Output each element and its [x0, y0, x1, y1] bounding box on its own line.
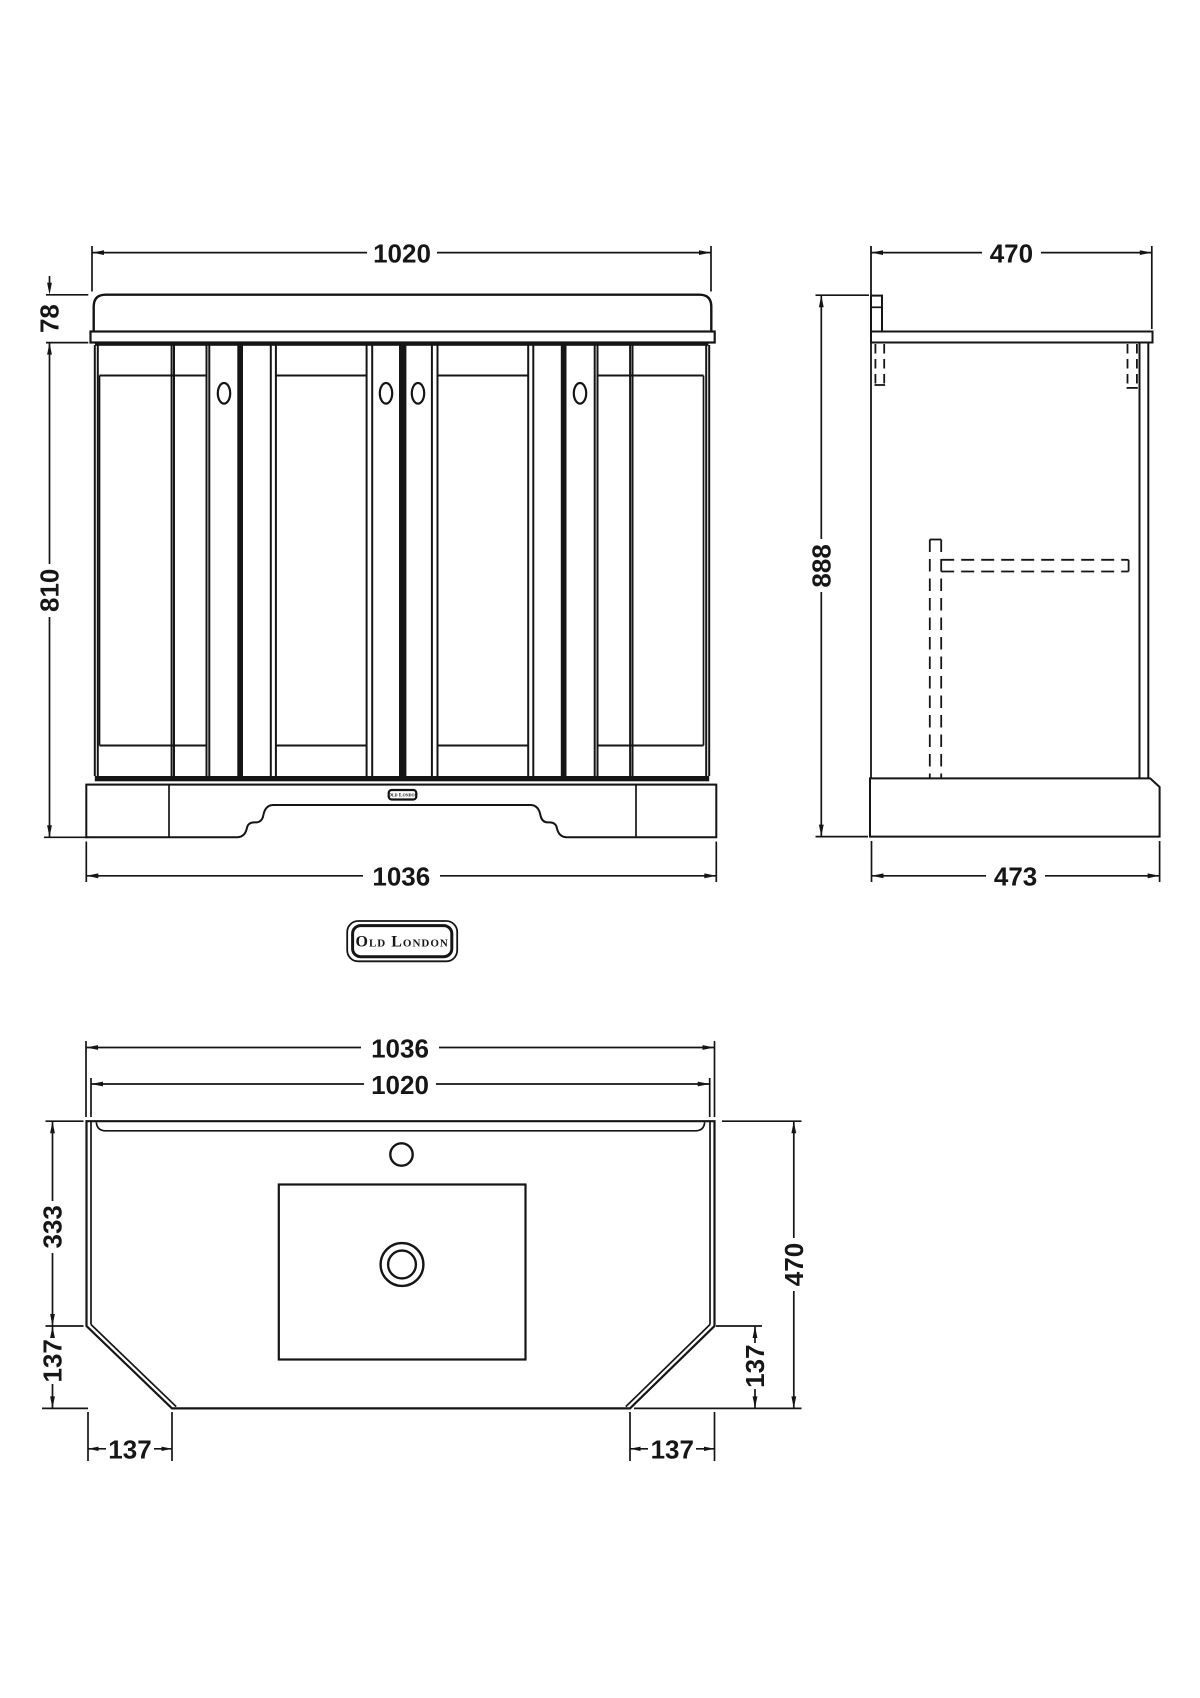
svg-text:1020: 1020: [373, 238, 431, 268]
svg-text:1036: 1036: [371, 1033, 429, 1063]
svg-text:Old London: Old London: [388, 793, 418, 799]
svg-text:473: 473: [994, 862, 1037, 892]
svg-text:137: 137: [651, 1435, 694, 1465]
svg-text:333: 333: [38, 1205, 68, 1248]
svg-text:470: 470: [990, 238, 1033, 268]
svg-text:137: 137: [38, 1339, 68, 1382]
svg-text:810: 810: [35, 569, 65, 612]
svg-text:137: 137: [108, 1435, 151, 1465]
svg-text:470: 470: [779, 1243, 809, 1286]
svg-text:78: 78: [35, 304, 65, 333]
svg-text:888: 888: [807, 544, 837, 587]
svg-text:1036: 1036: [372, 862, 430, 892]
svg-text:Old London: Old London: [356, 934, 449, 951]
svg-text:1020: 1020: [371, 1070, 429, 1100]
svg-text:137: 137: [740, 1345, 770, 1388]
